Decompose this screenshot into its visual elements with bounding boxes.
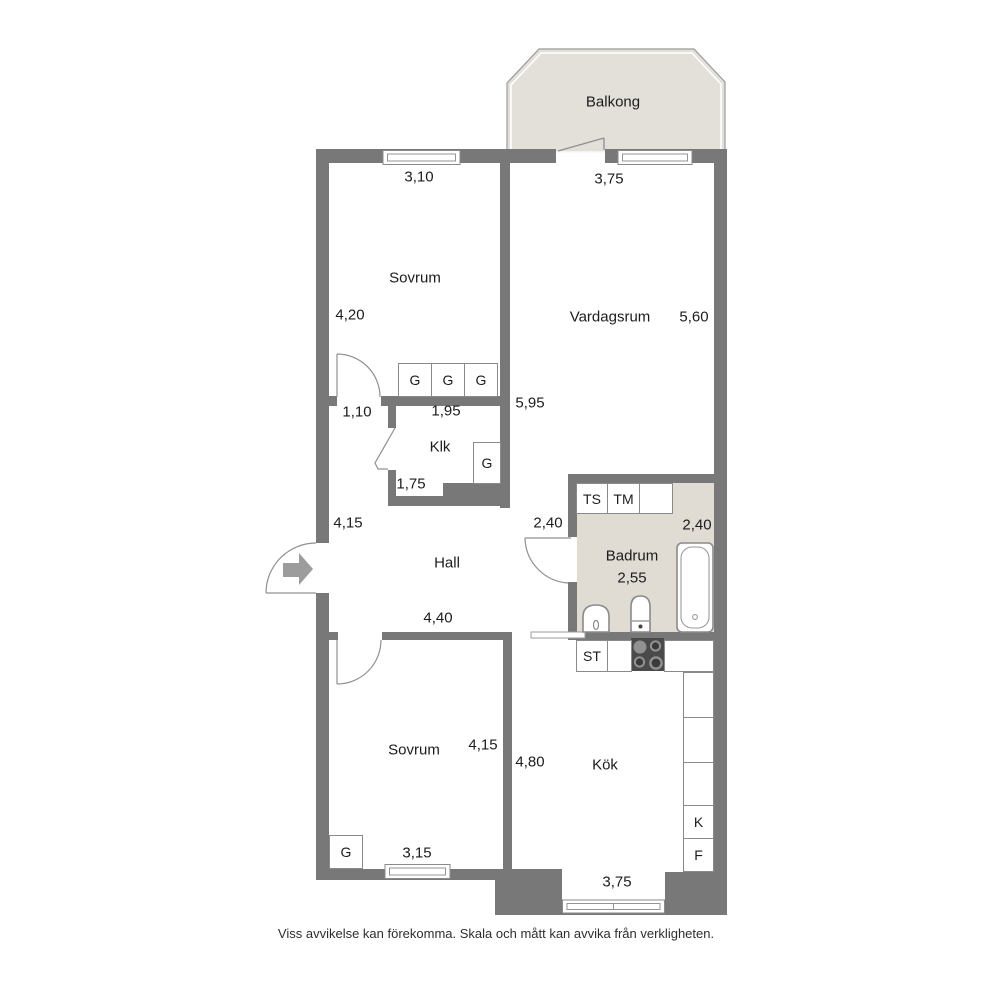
dim-vardagsrum-wall: 5,95 xyxy=(515,396,544,411)
balcony-label: Balkong xyxy=(586,95,640,110)
dim-kok-depth: 4,80 xyxy=(515,755,544,770)
window-sovrum-top xyxy=(383,151,460,165)
dim-badrum-width: 2,55 xyxy=(617,571,646,586)
washing-machine-label: TM xyxy=(613,492,633,506)
room-vardagsrum-label: Vardagsrum xyxy=(570,310,651,325)
dim-klk-depth: 1,75 xyxy=(396,477,425,492)
dim-hall-width: 4,40 xyxy=(423,611,452,626)
dim-sovrum-top-depth: 4,20 xyxy=(335,308,364,323)
wardrobe-label: G xyxy=(476,373,487,387)
dim-badrum-depth: 2,40 xyxy=(682,518,711,533)
kitchen-counter-box-a xyxy=(607,640,632,672)
washing-machine-box: TM xyxy=(607,483,640,514)
fixtures-layer xyxy=(0,0,992,992)
dim-sovrum-top-door: 1,10 xyxy=(342,405,371,420)
basin-box xyxy=(639,483,673,514)
wardrobe-label: G xyxy=(410,373,421,387)
wardrobe-box-sovrum2: G xyxy=(329,835,363,869)
room-kok-label: Kök xyxy=(592,758,618,773)
dim-hall-opening: 2,40 xyxy=(533,516,562,531)
toilet-icon xyxy=(631,596,650,632)
room-klk-label: Klk xyxy=(430,440,451,455)
window-vardagsrum xyxy=(618,151,692,165)
wardrobe-box-2: G xyxy=(431,363,465,397)
wardrobe-box-1: G xyxy=(398,363,432,397)
dim-sovrum-bottom-depth: 4,15 xyxy=(468,738,497,753)
fridge-label: K xyxy=(694,815,703,829)
kitchen-threshold xyxy=(531,632,585,638)
freezer-box: F xyxy=(683,838,714,872)
room-sovrum-bottom-label: Sovrum xyxy=(388,743,440,758)
room-sovrum-top-label: Sovrum xyxy=(389,271,441,286)
cleaning-cabinet-label: ST xyxy=(583,649,601,663)
fridge-box: K xyxy=(683,805,714,839)
window-sovrum-bottom xyxy=(385,865,450,879)
dim-sovrum-top-window: 3,10 xyxy=(404,170,433,185)
wardrobe-label: G xyxy=(482,456,493,470)
drying-cabinet-label: TS xyxy=(583,492,601,506)
door-sovrum-top xyxy=(337,354,380,397)
dim-vardagsrum-window: 3,75 xyxy=(594,172,623,187)
dim-sovrum-bottom-window: 3,15 xyxy=(402,846,431,861)
floorplan: G G G G G TS TM ST K F Balkong 3,10 Sovr… xyxy=(0,0,992,992)
window-kok xyxy=(563,900,665,913)
freezer-label: F xyxy=(694,848,703,862)
balcony-door-leaf xyxy=(558,138,604,151)
dim-kok-window: 3,75 xyxy=(602,875,631,890)
kitchen-counter-corner xyxy=(664,640,714,672)
wardrobe-label: G xyxy=(341,845,352,859)
room-badrum-label: Badrum xyxy=(606,549,659,564)
drying-cabinet-box: TS xyxy=(576,483,608,514)
wardrobe-label: G xyxy=(443,373,454,387)
door-sovrum-bottom xyxy=(337,640,381,684)
kitchen-sink-box xyxy=(683,717,714,763)
kitchen-counter-right-1 xyxy=(683,672,714,718)
dim-vardagsrum-depth: 5,60 xyxy=(679,310,708,325)
stove-icon xyxy=(631,638,664,671)
kitchen-counter-right-2 xyxy=(683,762,714,806)
door-klk-leaf xyxy=(375,428,395,469)
wardrobe-box-klk: G xyxy=(473,442,501,484)
room-hall-label: Hall xyxy=(434,556,460,571)
disclaimer-text: Viss avvikelse kan förekomma. Skala och … xyxy=(0,926,992,941)
dim-hall-length: 4,15 xyxy=(333,516,362,531)
badrum-washbasin-icon xyxy=(583,605,609,632)
entrance-arrow-icon xyxy=(283,553,313,585)
wardrobe-box-3: G xyxy=(464,363,498,397)
bathtub-icon xyxy=(677,543,713,632)
dim-klk-width: 1,95 xyxy=(431,404,460,419)
cleaning-cabinet-box: ST xyxy=(576,640,608,672)
door-badrum xyxy=(525,538,571,583)
